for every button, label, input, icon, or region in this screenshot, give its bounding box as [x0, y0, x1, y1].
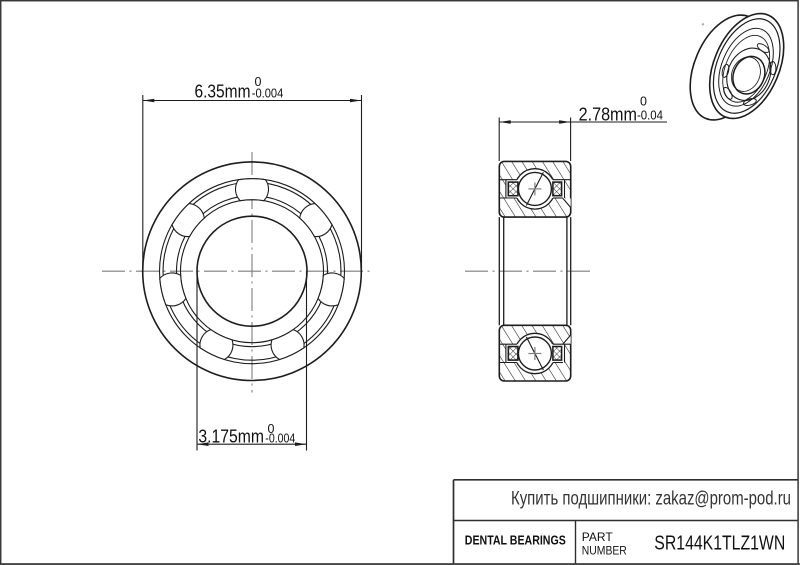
- svg-text:0: 0: [640, 95, 647, 109]
- svg-text:2.78mm: 2.78mm: [579, 105, 637, 125]
- svg-text:Купить подшипники: zakaz@prom-: Купить подшипники: zakaz@prom-pod.ru: [511, 489, 791, 510]
- svg-text:SR144K1TLZ1WN: SR144K1TLZ1WN: [654, 532, 785, 554]
- svg-text:3.175mm: 3.175mm: [198, 427, 264, 447]
- svg-text:NUMBER: NUMBER: [582, 543, 627, 557]
- svg-text:6.35mm: 6.35mm: [195, 82, 251, 102]
- svg-text:-0.004: -0.004: [252, 87, 284, 101]
- svg-text:-0.04: -0.04: [637, 109, 663, 123]
- svg-text:DENTAL BEARINGS: DENTAL BEARINGS: [465, 533, 566, 548]
- svg-text:PART: PART: [582, 530, 614, 544]
- svg-text:-0.004: -0.004: [265, 432, 295, 446]
